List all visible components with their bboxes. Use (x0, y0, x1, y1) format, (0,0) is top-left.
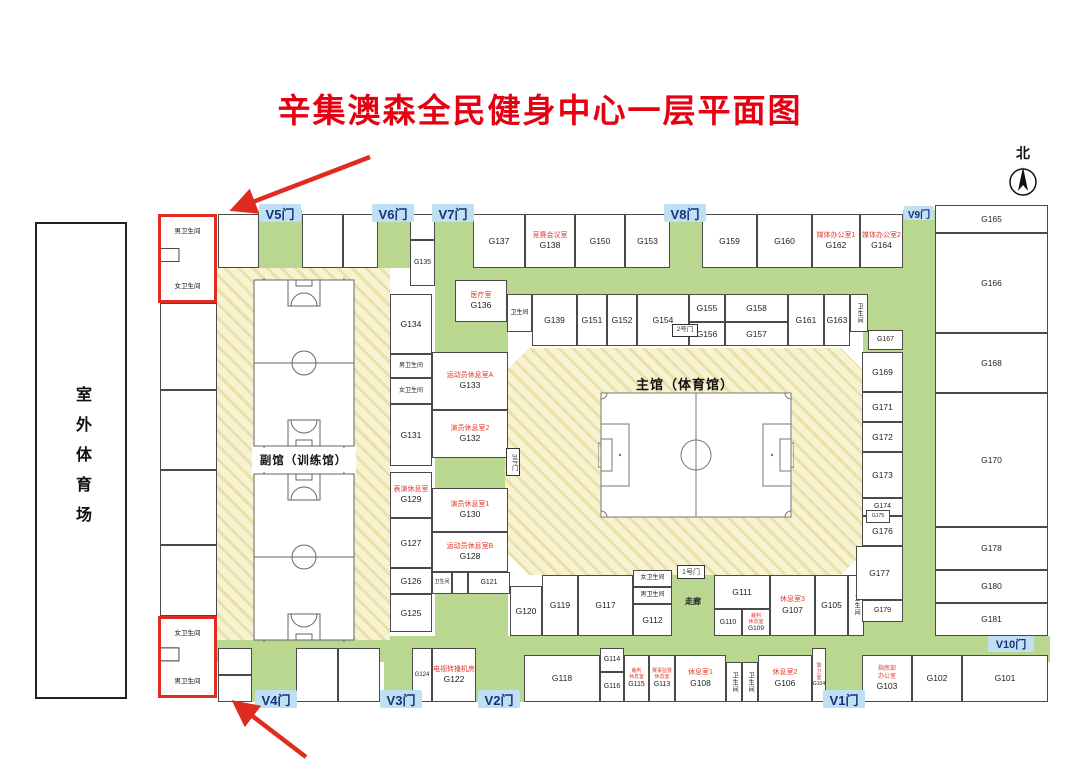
room-G106: 休息室2G106 (758, 655, 812, 702)
room-G181: G181 (935, 603, 1048, 636)
outdoor-stadium: 室外体育场 (35, 222, 127, 699)
room-G121: G121 (468, 572, 510, 594)
room-red-label: 指挥部 办公室 (878, 666, 896, 680)
room-number-label: G135 (414, 259, 431, 266)
room-number-label: G106 (775, 679, 796, 688)
room-G163: G163 (824, 294, 850, 346)
room-red-label: 媒体办公室1 (817, 232, 856, 240)
restroom-label: 男卫生间 (161, 225, 214, 235)
room-number-label: G130 (460, 510, 481, 519)
training-hall: 副馆（训练馆） (217, 268, 390, 640)
room-number-label: G165 (981, 215, 1002, 224)
room (452, 572, 468, 594)
room-G125: G125 (390, 594, 432, 632)
room-number-label: 男卫生间 (399, 363, 423, 369)
room-number-label: G178 (981, 544, 1002, 553)
basketball-court-icon (252, 278, 356, 448)
room-red-label: 休息室2 (773, 669, 798, 677)
room (218, 675, 252, 702)
room-G107: 休息室3G107 (770, 575, 815, 636)
restroom-label: 女卫生间 (161, 627, 214, 637)
room-G115: 裁判 休息室G115 (624, 655, 649, 702)
room-number-label: 女卫生间 (399, 388, 423, 394)
room-G114: G114 (600, 648, 624, 672)
room-G119: G119 (542, 575, 578, 636)
inner-door-3号门: 3号门 (506, 448, 520, 476)
room-G180: G180 (935, 570, 1048, 603)
room-G111: G111 (714, 575, 770, 609)
room-G137: G137 (473, 214, 525, 268)
room-G152: G152 (607, 294, 637, 346)
room-number-label: G110 (720, 619, 737, 626)
room-G120: G120 (510, 586, 542, 636)
room-女卫生间: 女卫生间 (633, 570, 672, 587)
room-number-label: G173 (872, 471, 893, 480)
room-number-label: 男卫生间 (640, 592, 664, 598)
room-number-label: G138 (540, 241, 561, 250)
room-G126: G126 (390, 568, 432, 594)
room-number-label: G109 (748, 626, 764, 633)
compass-icon (1007, 160, 1039, 198)
inner-door-1号门: 1号门 (677, 565, 705, 579)
room-red-label: 医疗室 (471, 292, 492, 300)
room-G112: G112 (633, 604, 672, 636)
room-男卫生间: 男卫生间 (390, 354, 432, 378)
football-pitch-icon (598, 390, 794, 520)
room-red-label: 裁判 休息室 (748, 613, 763, 625)
room-red-label: 运动员休息室B (447, 543, 494, 551)
room-G131: G131 (390, 404, 432, 466)
room-number-label: G107 (782, 606, 803, 615)
door-V10门: V10门 (988, 636, 1034, 652)
main-hall: 主馆（体育馆） (505, 348, 865, 575)
room-number-label: G167 (877, 336, 894, 343)
room-G165: G165 (935, 205, 1048, 233)
room-G179: G179 (862, 600, 903, 622)
room-G132: 演员休息室2G132 (432, 410, 508, 458)
room-G118: G118 (524, 655, 600, 702)
room-G136: 医疗室G136 (455, 280, 507, 322)
room-number-label: G128 (460, 552, 481, 561)
room-number-label: G179 (874, 607, 891, 614)
room-number-label: G169 (872, 368, 893, 377)
room-卫生间: 卫生间 (850, 294, 868, 332)
room-number-label: G153 (637, 237, 658, 246)
room-G117: G117 (578, 575, 633, 636)
room-number-label: G166 (981, 279, 1002, 288)
room-number-label: G152 (612, 316, 633, 325)
restroom-label: 女卫生间 (161, 280, 214, 290)
room-number-label: G114 (604, 656, 621, 663)
room-number-label: G164 (871, 241, 892, 250)
room-number-label: G162 (826, 241, 847, 250)
room-red-label: 赛事监督 休息室 (652, 668, 672, 680)
room-G151: G151 (577, 294, 607, 346)
room-G134: G134 (390, 294, 432, 354)
room-G133: 运动员休息室AG133 (432, 352, 508, 410)
room-G138: 竞赛会议室G138 (525, 214, 575, 268)
room-卫生间: 卫生间 (432, 572, 452, 594)
room-number-label: G154 (653, 316, 674, 325)
room-G150: G150 (575, 214, 625, 268)
room-G116: G116 (600, 672, 624, 702)
room-number-label: G105 (821, 601, 842, 610)
north-label: 北 (1002, 146, 1044, 160)
room-number-label: G151 (582, 316, 603, 325)
door-V4门: V4门 (255, 690, 297, 708)
room-number-label: 卫生间 (747, 672, 753, 693)
room-number-label: G116 (604, 683, 621, 690)
room-number-label: G177 (869, 569, 890, 578)
room-number-label: G117 (595, 601, 615, 610)
room-G103: 指挥部 办公室G103 (862, 655, 912, 702)
room-number-label: G120 (516, 607, 537, 616)
room-卫生间: 卫生间 (507, 294, 532, 332)
room-G153: G153 (625, 214, 670, 268)
room-number-label: 女卫生间 (640, 575, 664, 581)
room-red-label: 休息室1 (688, 669, 713, 677)
room-number-label: G163 (827, 316, 848, 325)
room-G173: G173 (862, 452, 903, 498)
door-V3门: V3门 (380, 690, 422, 708)
room-G164: 媒体办公室2G164 (860, 214, 903, 268)
room-G175: G175 (866, 510, 890, 523)
room-G101: G101 (962, 655, 1048, 702)
room-number-label: G156 (697, 330, 718, 339)
room-G129: 表演休息室G129 (390, 472, 432, 518)
room-G167: G167 (868, 330, 903, 350)
room-red-label: 表演休息室 (394, 486, 429, 494)
room-number-label: G155 (697, 304, 718, 313)
room-女卫生间: 女卫生间 (390, 378, 432, 404)
room-G162: 媒体办公室1G162 (812, 214, 860, 268)
page-title: 辛集澳森全民健身中心一层平面图 (0, 84, 1080, 132)
room-卫生间: 卫生间 (726, 662, 742, 702)
room-number-label: G180 (981, 582, 1002, 591)
door-V6门: V6门 (372, 204, 414, 222)
room-number-label: G127 (401, 539, 422, 548)
room (218, 214, 259, 268)
room-number-label: 卫生间 (856, 303, 862, 324)
room-number-label: G168 (981, 359, 1002, 368)
room-G157: G157 (725, 322, 788, 346)
room-number-label: G157 (746, 330, 767, 339)
room-number-label: G115 (628, 681, 645, 688)
room-number-label: G161 (796, 316, 817, 325)
room-G177: G177 (856, 546, 903, 600)
door-V8门: V8门 (664, 204, 706, 222)
main-hall-label: 主馆（体育馆） (505, 374, 865, 393)
door-V7门: V7门 (432, 204, 474, 222)
room-red-label: 演员休息室2 (451, 425, 490, 433)
room-G130: 演员休息室1G130 (432, 488, 508, 532)
room-number-label: G112 (642, 616, 662, 625)
room-number-label: G133 (460, 381, 481, 390)
room-red-label: 竞赛会议室 (533, 232, 568, 240)
room-G160: G160 (757, 214, 812, 268)
room (160, 470, 217, 545)
room-red-label: 演员休息室1 (451, 501, 490, 509)
room-G159: G159 (702, 214, 757, 268)
room-number-label: G150 (590, 237, 611, 246)
floor-plan-canvas: 辛集澳森全民健身中心一层平面图 北 室外体育场 (0, 0, 1080, 763)
room-G178: G178 (935, 527, 1048, 570)
room-G122: 电视转播机房G122 (432, 648, 476, 702)
room-G113: 赛事监督 休息室G113 (649, 655, 675, 702)
room-red-label: 电视转播机房 (433, 666, 475, 674)
room-number-label: 卫生间 (434, 580, 449, 585)
restroom-label: 男卫生间 (161, 675, 214, 685)
room-number-label: G118 (552, 674, 572, 683)
room-number-label: G125 (401, 609, 422, 618)
room-G109: 裁判 休息室G109 (742, 609, 770, 636)
room-number-label: G170 (981, 456, 1002, 465)
room-number-label: G139 (544, 316, 565, 325)
room-number-label: G122 (444, 675, 465, 684)
room-G127: G127 (390, 518, 432, 568)
room-G102: G102 (912, 655, 962, 702)
room (160, 390, 217, 470)
room-number-label: G126 (401, 577, 422, 586)
room-number-label: G181 (981, 615, 1002, 624)
corridor-label: 走廊 (672, 596, 714, 607)
room-G155: G155 (689, 294, 725, 322)
room-G105: G105 (815, 575, 848, 636)
door-V1门: V1门 (823, 690, 865, 708)
room-G169: G169 (862, 352, 903, 392)
room (338, 648, 380, 702)
room-number-label: G132 (460, 434, 481, 443)
room-G139: G139 (532, 294, 577, 346)
room-G128: 运动员休息室BG128 (432, 532, 508, 572)
training-hall-label: 副馆（训练馆） (217, 452, 390, 468)
outdoor-stadium-label: 室外体育场 (69, 386, 93, 536)
room-G170: G170 (935, 393, 1048, 527)
room-number-label: G119 (550, 601, 570, 610)
room-red-label: 警 卫 室 (816, 663, 821, 681)
restroom-highlight-box: 女卫生间男卫生间 (158, 616, 217, 698)
room-G172: G172 (862, 422, 903, 452)
room (160, 303, 217, 390)
room-number-label: G129 (401, 495, 422, 504)
room-G161: G161 (788, 294, 824, 346)
room-G154: G154 (637, 294, 689, 346)
room-number-label: G172 (872, 433, 893, 442)
room (296, 648, 338, 702)
room-number-label: G101 (995, 674, 1016, 683)
door-V9门: V9门 (904, 206, 934, 220)
room (343, 214, 378, 268)
room-G110: G110 (714, 609, 742, 636)
room-number-label: G136 (471, 301, 492, 310)
room-number-label: G137 (489, 237, 510, 246)
room-number-label: G131 (401, 431, 422, 440)
annotation-arrow (238, 705, 306, 757)
basketball-court-icon (252, 472, 356, 642)
room-男卫生间: 男卫生间 (633, 587, 672, 604)
room-red-label: 休息室3 (780, 596, 805, 604)
room (160, 545, 217, 616)
room-G166: G166 (935, 233, 1048, 333)
room-number-label: G102 (927, 674, 948, 683)
room-red-label: 媒体办公室2 (862, 232, 901, 240)
room-number-label: G175 (872, 514, 884, 519)
room-number-label: G159 (719, 237, 740, 246)
room-number-label: G134 (401, 320, 422, 329)
north-compass: 北 (1002, 146, 1044, 204)
room-red-label: 裁判 休息室 (629, 668, 644, 680)
room-number-label: G158 (746, 304, 767, 313)
room-number-label: G124 (415, 672, 430, 678)
corridor (903, 210, 935, 662)
room (218, 648, 252, 675)
room-number-label: G108 (690, 679, 711, 688)
inner-door-2号门: 2号门 (672, 324, 698, 337)
room-number-label: G171 (872, 403, 893, 412)
room-G135: G135 (410, 240, 435, 286)
room-G158: G158 (725, 294, 788, 322)
room-number-label: G160 (774, 237, 795, 246)
room-G168: G168 (935, 333, 1048, 393)
room (302, 214, 343, 268)
annotation-arrow (237, 157, 370, 208)
room-卫生间: 卫生间 (742, 662, 758, 702)
room-number-label: 卫生间 (731, 672, 737, 693)
door-V5门: V5门 (259, 204, 301, 222)
room-number-label: G104 (813, 682, 825, 687)
room-number-label: G113 (654, 681, 671, 688)
room-number-label: G121 (480, 579, 497, 586)
room-G108: 休息室1G108 (675, 655, 726, 702)
door-V2门: V2门 (478, 690, 520, 708)
room-red-label: 运动员休息室A (447, 372, 494, 380)
room-number-label: G103 (877, 682, 898, 691)
room-number-label: G176 (872, 527, 893, 536)
restroom-highlight-box: 男卫生间女卫生间 (158, 214, 217, 303)
room-G171: G171 (862, 392, 903, 422)
room-number-label: 卫生间 (510, 310, 528, 316)
room-number-label: G111 (732, 588, 752, 597)
